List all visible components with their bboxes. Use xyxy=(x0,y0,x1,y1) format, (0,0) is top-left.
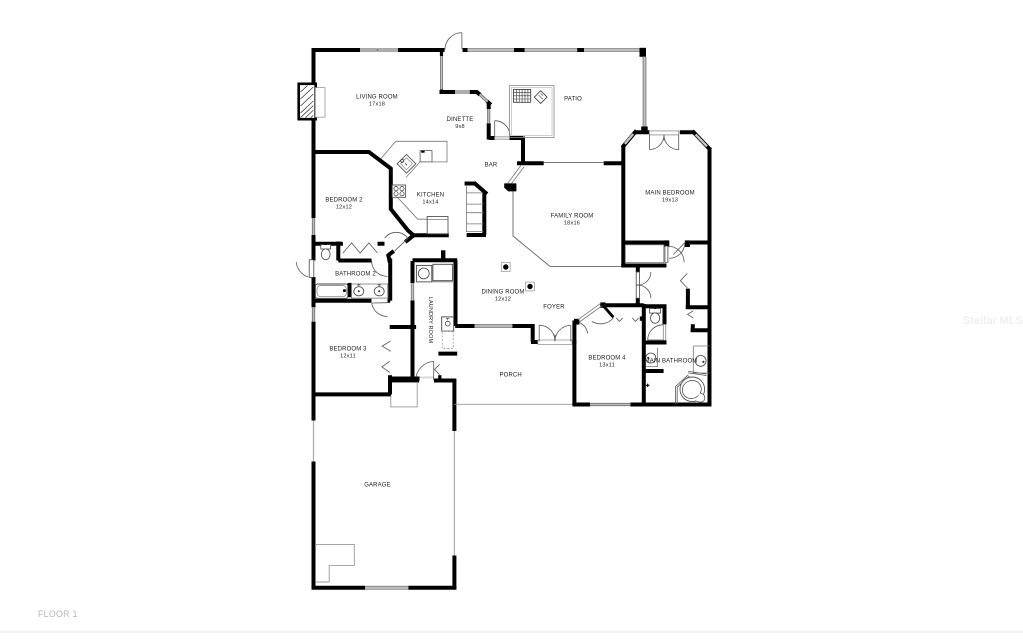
svg-text:MAIN BATHROOM: MAIN BATHROOM xyxy=(645,359,698,365)
svg-text:19x13: 19x13 xyxy=(662,198,678,204)
svg-text:LIVING ROOM: LIVING ROOM xyxy=(356,95,398,101)
svg-text:18x16: 18x16 xyxy=(564,221,580,227)
svg-text:FAMILY ROOM: FAMILY ROOM xyxy=(551,214,594,220)
svg-text:MAIN BEDROOM: MAIN BEDROOM xyxy=(645,191,694,197)
svg-text:LAUNDRY ROOM: LAUNDRY ROOM xyxy=(427,297,433,344)
svg-text:12x11: 12x11 xyxy=(340,354,356,360)
svg-text:PORCH: PORCH xyxy=(499,373,521,379)
svg-text:14x14: 14x14 xyxy=(422,200,438,206)
svg-text:BEDROOM 3: BEDROOM 3 xyxy=(329,347,367,353)
svg-text:13x11: 13x11 xyxy=(599,363,615,369)
svg-text:BATHROOM 2: BATHROOM 2 xyxy=(335,272,376,278)
svg-text:12x12: 12x12 xyxy=(495,297,511,303)
svg-text:BEDROOM 2: BEDROOM 2 xyxy=(325,198,363,204)
svg-text:GARAGE: GARAGE xyxy=(364,483,391,489)
svg-text:FLOOR 1: FLOOR 1 xyxy=(38,609,78,619)
svg-text:PATIO: PATIO xyxy=(564,97,582,103)
svg-text:9x8: 9x8 xyxy=(455,124,465,130)
svg-text:12x12: 12x12 xyxy=(336,205,352,211)
svg-text:BEDROOM 4: BEDROOM 4 xyxy=(588,356,626,362)
svg-text:DINING ROOM: DINING ROOM xyxy=(482,290,525,296)
svg-text:KITCHEN: KITCHEN xyxy=(417,193,444,199)
svg-text:17x18: 17x18 xyxy=(369,102,385,108)
svg-text:Stellar MLS: Stellar MLS xyxy=(963,315,1023,327)
svg-text:FOYER: FOYER xyxy=(543,305,565,311)
svg-text:DINETTE: DINETTE xyxy=(447,117,474,123)
svg-text:BAR: BAR xyxy=(485,163,498,169)
